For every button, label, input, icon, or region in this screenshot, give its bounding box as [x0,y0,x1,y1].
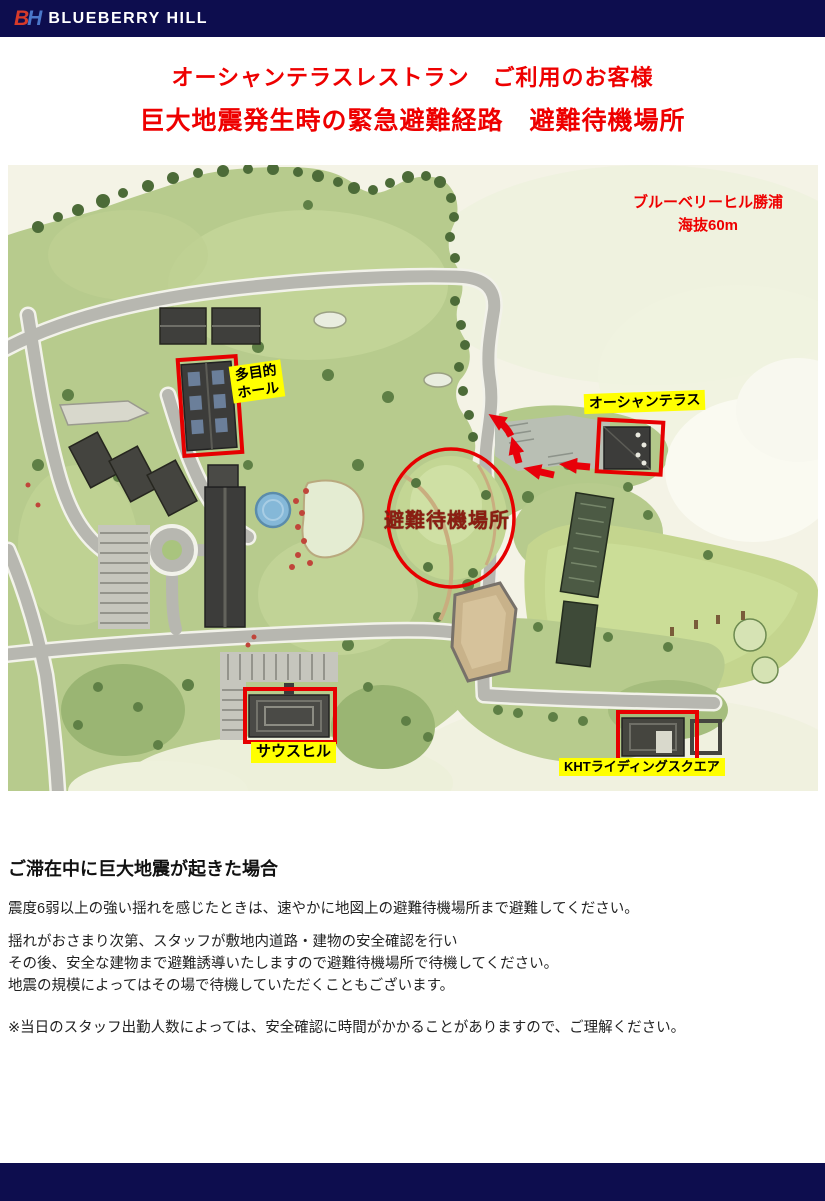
label-multipurpose-hall: 多目的ホール [229,360,286,404]
parking-lot [98,525,150,629]
label-kht-riding-square: KHTライディングスクエア [559,758,725,776]
p2-line3: 地震の規模によってはその場で待機していただくこともございます。 [8,978,454,994]
ocean-terrace-building [604,427,650,469]
multipurpose-hall-building [181,361,237,450]
evacuation-notice-page: BH BLUEBERRY HILL オーシャンテラスレストラン ご利用のお客様 … [0,0,825,1201]
label-south-hill: サウスヒル [251,742,336,763]
resort-map: ブルーベリーヒル勝浦 海抜60m 多目的ホール オーシャンテラス 避難待機場所 … [8,165,818,791]
header-bar: BH BLUEBERRY HILL [0,0,825,37]
main-building [205,465,245,627]
pool [256,493,290,527]
logo-letter-b: B [14,7,27,30]
note-paragraph: ※当日のスタッフ出勤人数によっては、安全確認に時間がかかることがありますので、ご… [8,1016,685,1037]
site-elevation-label: ブルーベリーヒル勝浦 海抜60m [598,192,818,237]
site-elevation: 海抜60m [678,217,738,234]
site-name: ブルーベリーヒル勝浦 [633,194,783,211]
brand-name: BLUEBERRY HILL [48,10,208,28]
section-heading: ご滞在中に巨大地震が起きた場合 [8,855,278,881]
p2-line2: その後、安全な建物まで避難誘導いたしますので避難待機場所で待機してください。 [8,956,558,972]
round-pen [752,657,778,683]
label-waiting-area: 避難待機場所 [384,504,510,533]
footer-bar [0,1163,825,1201]
notice-title-line1: オーシャンテラスレストラン ご利用のお客様 [0,60,825,92]
round-pen [734,619,766,651]
instruction-paragraph-1: 震度6弱以上の強い揺れを感じたときは、速やかに地図上の避難待機場所まで避難してく… [8,897,639,918]
blueberry-hill-logo-icon: BH [14,7,40,31]
logo-letter-h: H [27,7,40,30]
p2-line1: 揺れがおさまり次第、スタッフが敷地内道路・建物の安全確認を行い [8,934,458,950]
notice-title-line2: 巨大地震発生時の緊急避難経路 避難待機場所 [0,101,825,137]
resort-map-illustration [8,165,818,791]
instruction-paragraph-2: 揺れがおさまり次第、スタッフが敷地内道路・建物の安全確認を行い その後、安全な建… [8,931,558,997]
